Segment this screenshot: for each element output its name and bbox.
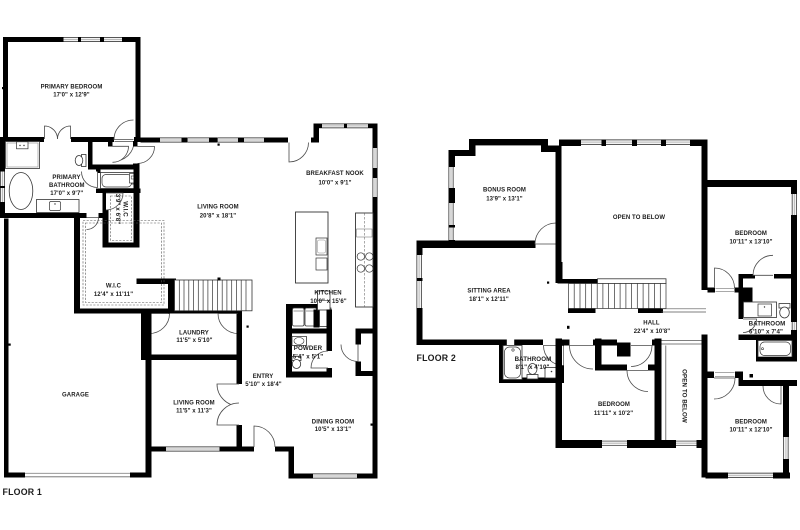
svg-text:17'0" x 9'7": 17'0" x 9'7" — [50, 191, 83, 197]
svg-text:LAUNDRY: LAUNDRY — [179, 330, 209, 336]
svg-text:HALL: HALL — [643, 321, 660, 327]
svg-text:FLOOR 1: FLOOR 1 — [3, 487, 43, 497]
svg-text:13'9" x 13'1": 13'9" x 13'1" — [486, 196, 523, 202]
svg-text:10'5" x 13'1": 10'5" x 13'1" — [315, 427, 352, 433]
svg-text:BEDROOM: BEDROOM — [735, 420, 767, 426]
svg-text:18'1" x 12'11": 18'1" x 12'11" — [469, 297, 509, 303]
svg-text:10'11" x 13'10": 10'11" x 13'10" — [729, 239, 772, 245]
svg-text:5'10" x 18'4": 5'10" x 18'4" — [245, 382, 282, 388]
svg-text:BATHROOM: BATHROOM — [49, 183, 85, 189]
svg-text:W.I.C: W.I.C — [106, 284, 122, 290]
svg-text:OPEN TO BELOW: OPEN TO BELOW — [613, 215, 665, 221]
svg-text:22'4" x 10'8": 22'4" x 10'8" — [634, 329, 671, 335]
svg-text:10'11" x 12'10": 10'11" x 12'10" — [729, 428, 772, 434]
svg-text:BONUS ROOM: BONUS ROOM — [483, 187, 526, 193]
svg-text:POWDER: POWDER — [294, 345, 323, 352]
svg-text:ENTRY: ENTRY — [253, 374, 274, 380]
svg-text:6'10" x 7'4": 6'10" x 7'4" — [749, 329, 783, 336]
svg-text:11'11" x 10'2": 11'11" x 10'2" — [594, 411, 633, 417]
svg-text:10'0" x 9'1": 10'0" x 9'1" — [318, 180, 351, 186]
svg-text:BREAKFAST NOOK: BREAKFAST NOOK — [306, 171, 364, 177]
svg-text:11'5" x 5'10": 11'5" x 5'10" — [176, 338, 212, 344]
svg-text:BEDROOM: BEDROOM — [598, 402, 630, 408]
svg-text:PRIMARY BEDROOM: PRIMARY BEDROOM — [41, 85, 103, 91]
svg-text:LIVING ROOM: LIVING ROOM — [173, 401, 214, 407]
svg-text:DINING ROOM: DINING ROOM — [312, 419, 354, 425]
svg-text:8'1" x 4'10": 8'1" x 4'10" — [515, 364, 549, 371]
svg-text:10'0" x 15'6": 10'0" x 15'6" — [310, 299, 347, 305]
svg-text:GARAGE: GARAGE — [62, 392, 89, 398]
svg-text:20'8" x 18'1": 20'8" x 18'1" — [200, 214, 237, 220]
svg-text:17'0" x 12'9": 17'0" x 12'9" — [53, 92, 90, 98]
svg-text:KITCHEN: KITCHEN — [314, 291, 341, 297]
svg-text:BEDROOM: BEDROOM — [735, 231, 767, 237]
svg-text:12'4" x 11'11": 12'4" x 11'11" — [94, 292, 133, 298]
svg-text:SITTING AREA: SITTING AREA — [467, 289, 511, 295]
svg-text:PRIMARY: PRIMARY — [52, 175, 80, 181]
svg-text:3'9" x 6'8": 3'9" x 6'8" — [114, 194, 121, 225]
svg-text:5'4" x 5'1": 5'4" x 5'1" — [293, 353, 324, 360]
svg-text:W.I.C: W.I.C — [122, 201, 129, 217]
svg-text:OPEN TO BELOW: OPEN TO BELOW — [681, 369, 688, 423]
svg-text:LIVING ROOM: LIVING ROOM — [197, 205, 238, 211]
svg-text:FLOOR 2: FLOOR 2 — [417, 353, 457, 363]
svg-text:11'5" x 11'3": 11'5" x 11'3" — [176, 409, 212, 415]
svg-text:BATHROOM: BATHROOM — [515, 356, 552, 363]
svg-text:BATHROOM: BATHROOM — [749, 320, 786, 327]
